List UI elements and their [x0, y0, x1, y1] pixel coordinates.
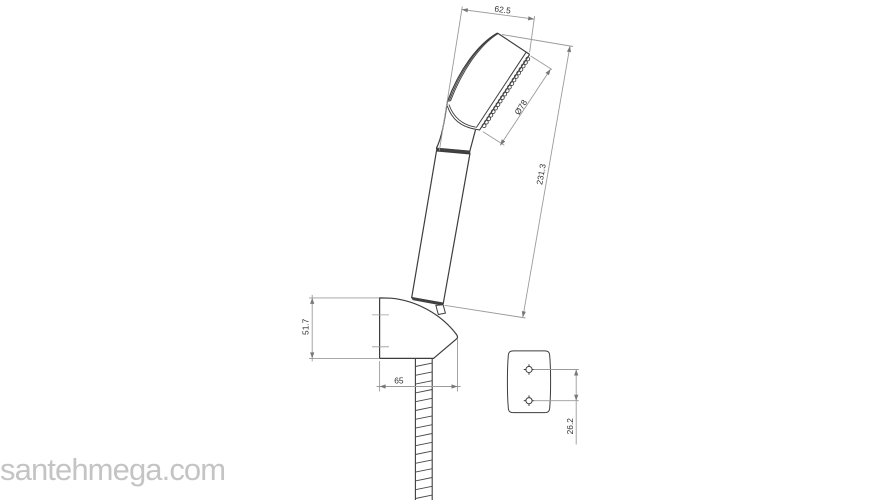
svg-text:65: 65	[394, 376, 404, 386]
svg-text:26.2: 26.2	[565, 418, 575, 435]
svg-text:51.7: 51.7	[301, 318, 311, 335]
svg-text:santehmega.com: santehmega.com	[0, 452, 225, 487]
